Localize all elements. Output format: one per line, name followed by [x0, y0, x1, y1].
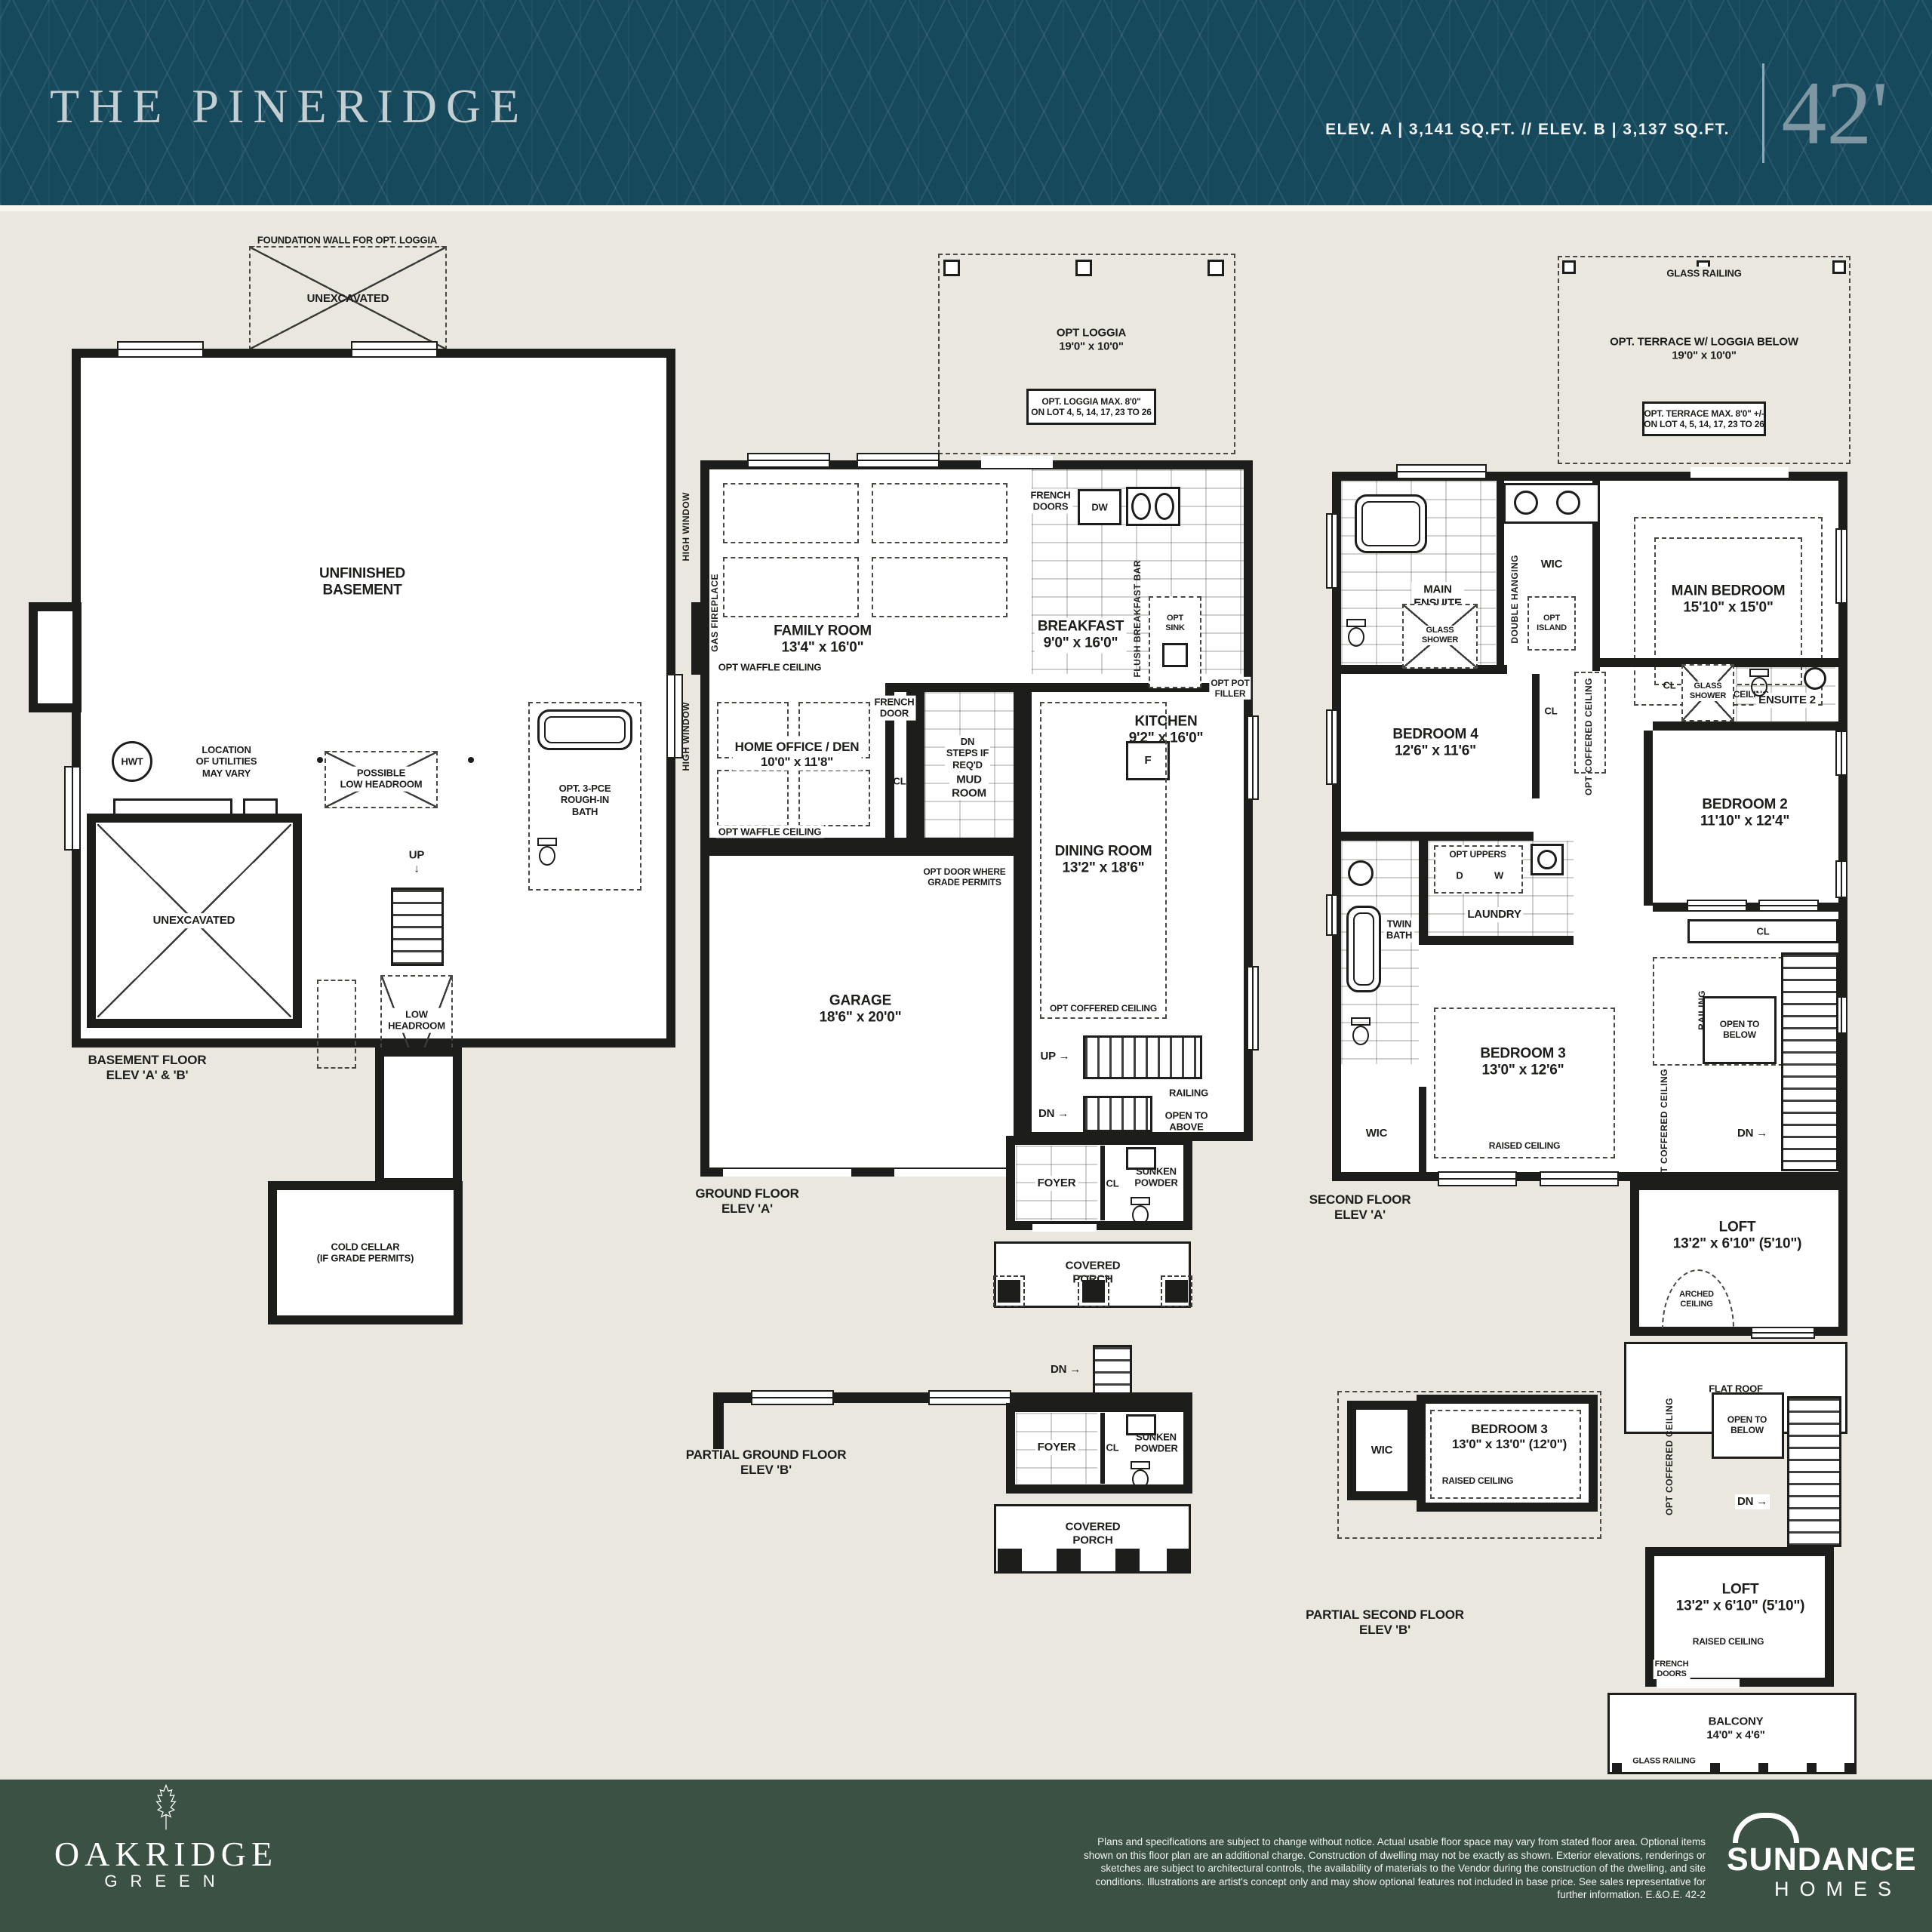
dn-label: DN → — [1051, 1363, 1081, 1377]
opt-bath-label: OPT. 3-PCE ROUGH-IN BATH — [559, 783, 611, 817]
partial-b-wall — [713, 1392, 724, 1449]
glass-shower-label: GLASS SHOWER — [1420, 626, 1460, 645]
raised-ceiling-label: RAISED CEILING — [1487, 1140, 1563, 1152]
railing-post — [1710, 1763, 1720, 1773]
opt-sink-label: OPT SINK — [1165, 614, 1184, 633]
low-headroom-label: LOW HEADROOM — [386, 1008, 448, 1033]
french-door-opening — [981, 456, 1053, 468]
column-dot — [468, 757, 474, 763]
wic-label: WIC — [1366, 1127, 1388, 1140]
ensuite-tub — [1355, 494, 1427, 553]
window — [1835, 860, 1847, 898]
open-to-above-label: OPEN TO ABOVE — [1165, 1110, 1208, 1134]
high-window-label: HIGH WINDOW — [681, 492, 691, 561]
railing-post — [1807, 1763, 1817, 1773]
sink-bowl — [1155, 493, 1174, 520]
closet-wall — [1100, 1146, 1105, 1220]
opt-uppers-label: OPT UPPERS — [1449, 849, 1506, 860]
wall — [1428, 936, 1574, 945]
wall — [1419, 832, 1428, 945]
window — [1540, 1171, 1619, 1186]
sundance-arch-icon — [1733, 1813, 1799, 1843]
opt-island — [1149, 596, 1201, 688]
hwt-label: HWT — [122, 755, 143, 767]
vanity-sink — [1514, 491, 1538, 515]
cl-label: CL — [1757, 925, 1770, 937]
wall — [1644, 731, 1653, 906]
railing-label: RAILING — [1169, 1087, 1208, 1098]
elevation-specs: ELEV. A | 3,141 SQ.FT. // ELEV. B | 3,13… — [1325, 121, 1730, 139]
raised-ceiling-label: RAISED CEILING — [1440, 1475, 1516, 1487]
coffered-ceiling-label: OPT COFFERED CEILING — [1659, 1069, 1669, 1186]
waffle-box — [872, 557, 1008, 617]
loft-label: LOFT 13'2" x 6'10" (5'10") — [1673, 1220, 1802, 1254]
ground-window — [857, 453, 940, 468]
raised-ceiling-zone — [1434, 1008, 1615, 1158]
stairs-dn — [1781, 952, 1838, 1171]
bathtub — [537, 709, 632, 750]
ground-window — [747, 453, 830, 468]
bedroom4-label: BEDROOM 4 12'6" x 11'6" — [1392, 727, 1478, 761]
floorplan-sheet: THE PINERIDGE ELEV. A | 3,141 SQ.FT. // … — [0, 0, 1932, 1932]
breakfast-label: BREAKFAST 9'0" x 16'0" — [1035, 618, 1127, 654]
possible-low-headroom-label: POSSIBLE LOW HEADROOM — [338, 767, 425, 792]
french-doors-label: FRENCH DOORS — [1654, 1660, 1690, 1679]
toilet — [1131, 1197, 1150, 1226]
builder-subname: HOMES — [1727, 1878, 1902, 1901]
ground-title: GROUND FLOOR ELEV 'A' — [695, 1186, 798, 1217]
waffle-ceiling-label: OPT WAFFLE CEILING — [716, 825, 824, 838]
toilet — [1346, 619, 1366, 648]
raised-ceiling-label: RAISED CEILING — [1693, 1636, 1764, 1647]
island-sink — [1162, 643, 1188, 667]
double-hanging-label: DOUBLE HANGING — [1509, 555, 1520, 644]
terrace-door-opening — [1690, 467, 1789, 478]
glass-railing-label: GLASS RAILING — [1631, 1757, 1697, 1767]
porch-post — [1082, 1280, 1105, 1303]
dn-steps-label: DN STEPS IF REQ'D — [945, 735, 990, 771]
toilet — [537, 838, 557, 866]
coffered-ceiling-label: OPT COFFERED CEILING — [1664, 1398, 1675, 1515]
high-window-label: HIGH WINDOW — [681, 702, 691, 771]
mud-room-label: MUD ROOM — [949, 772, 989, 800]
dw-label: DW — [1091, 501, 1107, 512]
twin-bath-label: TWIN BATH — [1384, 918, 1414, 943]
porch-post — [1115, 1549, 1140, 1573]
family-room-label: FAMILY ROOM 13'4" x 16'0" — [774, 623, 872, 657]
sink — [1804, 667, 1826, 690]
basement-window — [64, 766, 81, 851]
loggia-note-label: OPT. LOGGIA MAX. 8'0" ON LOT 4, 5, 14, 1… — [1031, 396, 1151, 417]
wall — [1419, 1087, 1426, 1177]
coffered-ceiling-label: OPT COFFERED CEILING — [1583, 678, 1594, 795]
coffered-ceiling-label: OPT COFFERED CEILING — [1048, 1002, 1159, 1014]
utilities-note: LOCATION OF UTILITIES MAY VARY — [196, 744, 257, 779]
builder-name: SUNDANCE — [1727, 1841, 1917, 1878]
open-to-below-label: OPEN TO BELOW — [1727, 1414, 1767, 1435]
opt-terrace-label: OPT. TERRACE W/ LOGGIA BELOW 19'0" x 10'… — [1610, 335, 1798, 361]
foyer-label: FOYER — [1035, 1440, 1078, 1455]
garage-door-opening — [894, 1169, 1023, 1177]
railing-post — [1844, 1763, 1854, 1773]
lot-width-badge: 42' — [1762, 63, 1888, 163]
twin-tub — [1346, 906, 1381, 992]
loggia-post — [1207, 260, 1224, 276]
second-title: SECOND FLOOR ELEV 'A' — [1309, 1192, 1411, 1223]
loggia-post — [1075, 260, 1092, 276]
basement-foundation-note: FOUNDATION WALL FOR OPT. LOGGIA — [257, 234, 437, 245]
french-door-label: FRENCH DOOR — [873, 696, 916, 721]
main-bedroom-label: MAIN BEDROOM 15'10" x 15'0" — [1669, 583, 1789, 618]
opt-door-note: OPT DOOR WHERE GRADE PERMITS — [923, 866, 1005, 888]
unfinished-basement-label: UNFINISHED BASEMENT — [319, 566, 405, 600]
window — [1326, 709, 1338, 785]
opt-loggia-label: OPT LOGGIA 19'0" x 10'0" — [1057, 326, 1126, 352]
loggia-post — [943, 260, 960, 276]
terrace-note-label: OPT. TERRACE MAX. 8'0" +/- ON LOT 4, 5, … — [1644, 408, 1764, 429]
window — [1835, 731, 1847, 776]
sink-bowl — [1537, 850, 1557, 869]
glass-shower-label: GLASS SHOWER — [1688, 681, 1727, 701]
basement-window — [117, 341, 204, 358]
waffle-box — [723, 483, 859, 543]
dn-label: DN → — [1735, 1126, 1770, 1141]
wall — [1532, 674, 1540, 798]
column-dot — [317, 757, 323, 763]
french-doors-label: FRENCH DOORS — [1029, 489, 1073, 514]
sunken-powder-label: SUNKEN POWDER — [1134, 1432, 1177, 1455]
window — [1438, 1171, 1517, 1186]
basement-unexcavated-top-label: UNEXCAVATED — [307, 292, 389, 306]
railing-post — [1758, 1763, 1768, 1773]
second-b-title: PARTIAL SECOND FLOOR ELEV 'B' — [1306, 1607, 1464, 1638]
terrace-post — [1562, 260, 1576, 274]
waffle-box — [717, 770, 789, 826]
railing-post — [1612, 1763, 1622, 1773]
header-band: THE PINERIDGE ELEV. A | 3,141 SQ.FT. // … — [0, 0, 1932, 211]
closet-wall — [1100, 1413, 1105, 1484]
glass-railing-label: GLASS RAILING — [1664, 266, 1743, 279]
porch-post — [998, 1549, 1022, 1573]
wic-label: WIC — [1371, 1444, 1393, 1457]
basement-unexcavated-main-label: UNEXCAVATED — [150, 913, 238, 928]
open-to-below-label: OPEN TO BELOW — [1720, 1019, 1759, 1040]
window — [1326, 894, 1338, 936]
basement-up-label: UP ↓ — [409, 848, 424, 875]
cl-label: CL — [894, 775, 906, 786]
french-door-opening — [1657, 1679, 1740, 1688]
sunken-powder-label: SUNKEN POWDER — [1134, 1166, 1177, 1189]
dn-label: DN → — [1735, 1494, 1770, 1509]
toilet — [1131, 1461, 1150, 1490]
wic-label: WIC — [1541, 558, 1563, 571]
window — [751, 1390, 834, 1405]
waffle-box — [798, 770, 870, 826]
basement-corridor — [375, 1048, 462, 1187]
balcony-label: BALCONY 14'0" x 4'6" — [1706, 1715, 1764, 1741]
dryer-label: D — [1456, 869, 1463, 881]
cl-label: CL — [1663, 679, 1676, 691]
stairs-up — [1083, 1035, 1202, 1079]
cl-label: CL — [1106, 1441, 1119, 1453]
cold-cellar-label: COLD CELLAR (IF GRADE PERMITS) — [317, 1241, 414, 1265]
ghost-stairs — [317, 980, 356, 1069]
waffle-ceiling-label: OPT WAFFLE CEILING — [716, 660, 824, 673]
up-label: UP → — [1041, 1050, 1070, 1063]
laundry-label: LAUNDRY — [1465, 907, 1523, 922]
porch-post — [1167, 1549, 1191, 1573]
footer-band: OAKRIDGE GREEN Plans and specifications … — [0, 1780, 1932, 1932]
window — [1835, 528, 1847, 604]
wall — [1341, 832, 1534, 841]
gas-fireplace-label: GAS FIREPLACE — [709, 574, 720, 652]
bedroom2-label: BEDROOM 2 11'10" x 12'4" — [1700, 797, 1789, 831]
ground-window — [1247, 715, 1259, 800]
garage-door-opening — [723, 1169, 851, 1177]
porch-post — [998, 1280, 1020, 1303]
bay-window — [1758, 900, 1819, 912]
disclaimer-text: Plans and specifications are subject to … — [1075, 1835, 1706, 1902]
covered-porch-label: COVERED PORCH — [1066, 1520, 1121, 1546]
pedestal-sink — [1348, 860, 1374, 886]
community-subname: GREEN — [45, 1872, 287, 1891]
porch-post — [1165, 1280, 1188, 1303]
waffle-box — [723, 557, 859, 617]
dn-label: DN → — [1038, 1107, 1069, 1121]
ground-b-title: PARTIAL GROUND FLOOR ELEV 'B' — [686, 1447, 847, 1478]
cl-label: CL — [1106, 1177, 1119, 1189]
stairs-down — [1083, 1096, 1152, 1132]
window — [928, 1390, 1011, 1405]
waffle-box — [872, 483, 1008, 543]
stairs-down — [1093, 1345, 1132, 1395]
stairs-dn-b — [1787, 1396, 1841, 1547]
flush-breakfast-bar-label: FLUSH BREAKFAST BAR — [1132, 560, 1143, 678]
community-name: OAKRIDGE — [45, 1834, 287, 1874]
oak-leaf-icon — [143, 1784, 189, 1831]
basement-stairs-up — [391, 888, 444, 966]
cl-label: CL — [1545, 705, 1558, 716]
washer-label: W — [1494, 869, 1503, 881]
foyer-label: FOYER — [1035, 1176, 1078, 1191]
page-title: THE PINERIDGE — [50, 78, 528, 134]
arched-ceiling-label: ARCHED CEILING — [1679, 1290, 1714, 1309]
opt-pot-filler-label: OPT POT FILLER — [1209, 677, 1251, 700]
basement-window — [351, 341, 438, 358]
window — [1396, 464, 1487, 479]
garage-label: GARAGE 18'6" x 20'0" — [820, 993, 902, 1027]
basement-title: BASEMENT FLOOR ELEV 'A' & 'B' — [88, 1053, 207, 1083]
railing-label: RAILING — [1697, 990, 1707, 1030]
loft-label: LOFT 13'2" x 6'10" (5'10") — [1676, 1582, 1805, 1616]
ground-window — [1247, 966, 1259, 1051]
vanity-sink — [1556, 491, 1580, 515]
sink-bowl — [1131, 493, 1151, 520]
opt-island-label: OPT ISLAND — [1537, 614, 1567, 633]
bay-window — [1687, 900, 1747, 912]
porch-post — [1057, 1549, 1081, 1573]
front-door-opening — [1032, 1224, 1097, 1232]
bedroom3-label: BEDROOM 3 13'0" x 12'6" — [1477, 1045, 1568, 1081]
window — [1751, 1327, 1815, 1339]
window — [1326, 513, 1338, 589]
dining-room-label: DINING ROOM 13'2" x 18'6" — [1052, 843, 1155, 878]
toilet — [1351, 1017, 1371, 1046]
basement-bump-out — [29, 602, 82, 712]
fireplace-box — [691, 602, 702, 675]
home-office-label: HOME OFFICE / DEN 10'0" x 11'8" — [733, 739, 862, 771]
toilet — [1749, 669, 1769, 697]
terrace-post — [1832, 260, 1846, 274]
